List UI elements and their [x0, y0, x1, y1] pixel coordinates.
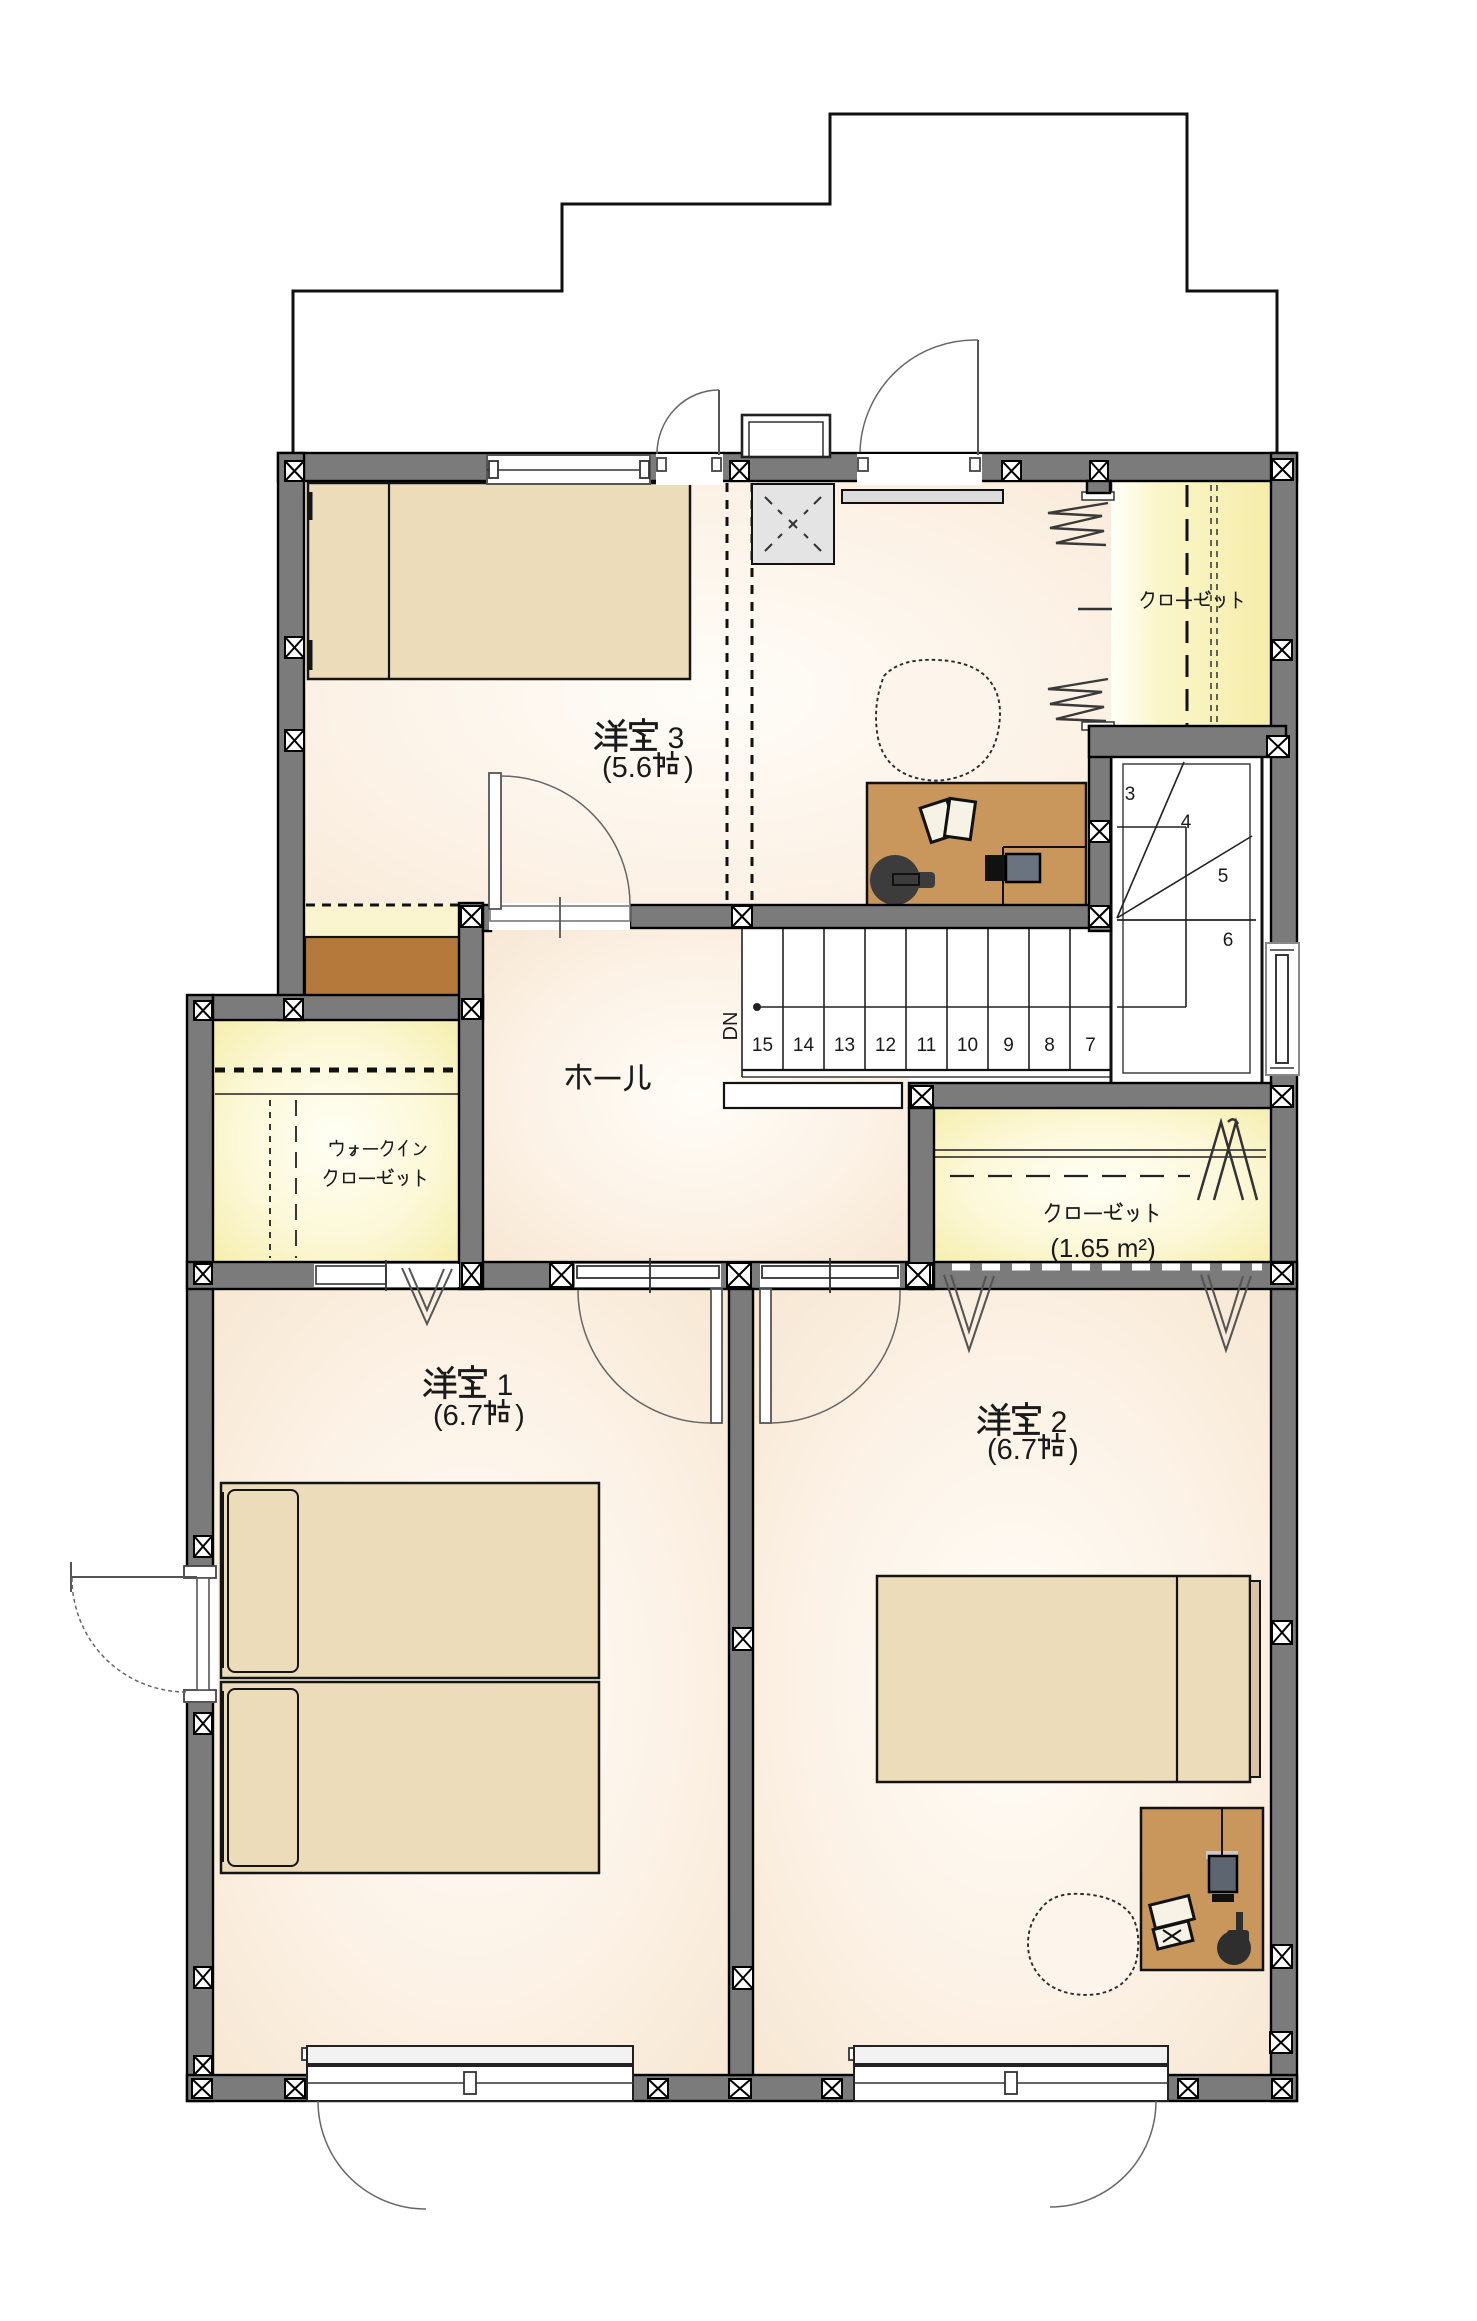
svg-text:): ): [515, 1400, 525, 1432]
svg-text:3: 3: [668, 722, 685, 755]
svg-text:3: 3: [1125, 784, 1136, 805]
svg-text:4: 4: [1181, 812, 1192, 833]
svg-text:): ): [684, 752, 694, 784]
svg-text:(6.7: (6.7: [433, 1400, 483, 1432]
svg-text:2: 2: [1051, 1406, 1068, 1439]
svg-text:10: 10: [957, 1035, 978, 1056]
svg-text:7: 7: [1085, 1035, 1096, 1056]
svg-text:(6.7: (6.7: [987, 1434, 1037, 1466]
svg-text:14: 14: [793, 1035, 815, 1056]
svg-text:): ): [1069, 1434, 1079, 1466]
svg-text:1: 1: [497, 1369, 514, 1402]
svg-text:12: 12: [875, 1035, 896, 1056]
svg-text:9: 9: [1003, 1035, 1014, 1056]
svg-text:6: 6: [1223, 930, 1234, 951]
svg-text:11: 11: [917, 1035, 937, 1056]
svg-text:13: 13: [834, 1035, 855, 1056]
svg-text:15: 15: [752, 1035, 773, 1056]
svg-text:(1.65 m²): (1.65 m²): [1050, 1233, 1155, 1263]
svg-text:(5.6: (5.6: [602, 752, 652, 784]
svg-text:5: 5: [1218, 866, 1229, 887]
svg-text:DN: DN: [720, 1012, 742, 1041]
svg-text:8: 8: [1044, 1035, 1055, 1056]
